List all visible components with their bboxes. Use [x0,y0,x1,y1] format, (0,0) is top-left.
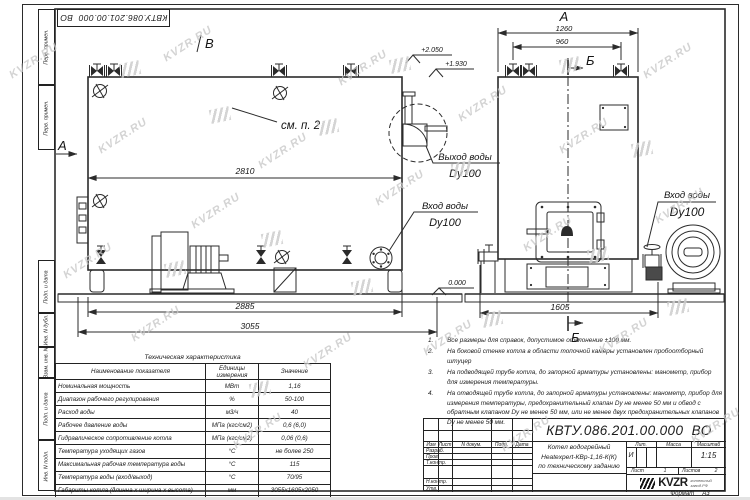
handhole-icon [92,194,108,208]
drawing-sheet: 2810 см. п. 2 В А +2.050 +1.930 0.000 Вы… [0,0,750,500]
margin-box-podp-data-1: Подп. и дата [38,260,55,313]
spec-row: Гидравлическое сопротивление котлаМПа (к… [56,432,331,445]
spec-table-title: Техническая характеристика [55,354,330,361]
margin-label: Инв. N подл. [44,450,50,481]
section-b-top-label: Б [586,53,595,68]
side-valve [478,245,498,293]
spec-cell: °С [206,471,259,484]
inlet-dn-label-side: Dy100 [429,217,462,229]
handhole-icon [274,250,290,264]
spec-cell: 0,6 (6,0) [259,419,331,432]
product-name-line: Котел водогрейный [533,444,625,451]
spec-row: Максимальная рабочая температура воды°С1… [56,458,331,471]
spec-cell: МПа (кгс/см2) [206,432,259,445]
note-item: 3.На подводящей трубе котла, до запорной… [428,368,722,388]
spec-row: Температура уходящих газов°Сне более 250 [56,445,331,458]
mass-label: Масса [656,442,691,448]
dim-1605-label: 1605 [551,302,570,312]
spec-cell: 1,16 [259,380,331,393]
kvzr-logo-icon [640,478,655,489]
spec-cell: Рабочее давление воды [56,419,206,432]
note-item: 2.На боковой стенке котла в области топо… [428,347,722,367]
safety-valve-icon [614,64,629,77]
inlet-valve [643,245,662,281]
margin-label: Взам. инв. N [44,347,50,378]
drain-valve-icon [256,246,266,264]
spec-cell: 115 [259,458,331,471]
spec-cell: 50-100 [259,393,331,406]
spec-row: Номинальная мощностьМВт1,16 [56,380,331,393]
outlet-label: Выход воды [438,152,491,163]
spec-cell: Диапазон рабочего регулирования [56,393,206,406]
dim-1260-label: 1260 [556,24,574,33]
spec-row: Температура воды (вход/выход)°С70/95 [56,471,331,484]
row-tkontr: Т.контр. [426,460,446,466]
spec-cell: % [206,393,259,406]
outlet-dn-label: Dy100 [449,168,482,180]
spec-row: Диапазон рабочего регулирования%50-100 [56,393,331,406]
door-latch [561,226,573,236]
handhole-icon [272,86,288,100]
notes-list: 1.Все размеры для справок, допустимое от… [428,336,722,429]
col-izm: Изм [424,442,438,448]
note-text: На боковой стенке котла в области топочн… [447,347,722,367]
drain-valve-icon [96,246,106,264]
spec-cell: Номинальная мощность [56,380,206,393]
safety-valve-icon [107,64,122,77]
safety-valve-icon [272,64,287,77]
dim-overall-label: 3055 [241,321,260,331]
spec-cell: °С [206,445,259,458]
margin-label: Подп. и дата [44,270,50,303]
row-utv: Утв. [426,486,437,492]
handhole-icon [92,84,108,98]
spec-cell: МПа (кгс/см2) [206,419,259,432]
safety-valve-icon [90,64,105,77]
blower-fan [666,225,720,293]
view-a-label: А [559,9,569,24]
top-stamp: КВТУ.086.201.00.000 ВО [57,9,170,27]
scale-value: 1:15 [691,451,726,460]
spec-cell: Температура воды (вход/выход) [56,471,206,484]
spec-cell: не более 250 [259,445,331,458]
detail-note-label: см. п. 2 [281,120,321,132]
dim-body-label: 2810 [235,166,255,176]
margin-label: Инв. N дубл. [44,315,50,346]
safety-valve-icon [522,64,537,77]
sheets-value: 2 [710,468,722,474]
safety-valve-icon [344,64,359,77]
elev-zero-label: 0.000 [448,280,466,287]
product-name-line: по техническому заданию [533,463,625,470]
spec-header-value: Значение [259,364,331,380]
spec-header-name: Наименование показателя [56,364,206,380]
safety-valve-icon [506,64,521,77]
spec-cell: Гидравлическое сопротивление котла [56,432,206,445]
note-number: 3. [428,368,440,388]
note-text: Все размеры для справок, допустимое откл… [447,336,631,346]
col-list: Лист [438,442,452,448]
product-name: Котел водогрейный Heatexpert-КВр-1,16-К(… [533,442,625,472]
dim-960-label: 960 [556,37,569,46]
kvzr-logo-caption: котельный завод.РФ [691,478,712,488]
dim-frame-label: 2885 [235,301,255,311]
view-b-label: В [205,36,214,51]
row-nkontr: Н.контр. [426,479,447,485]
inlet-label-side: Вход воды [422,201,468,212]
spec-cell: м3/ч [206,406,259,419]
spec-cell: 40 [259,406,331,419]
spec-cell: 0,06 (0,6) [259,432,331,445]
spec-header-row: Наименование показателя Единицы измерени… [56,364,331,380]
sheet-label: Лист [631,468,644,474]
section-a-label: А [57,138,67,153]
spec-cell: Температура уходящих газов [56,445,206,458]
title-block: КВТУ.086.201.00.000 ВО Изм Лист N докум.… [423,418,725,491]
drain-valve-icon [342,246,352,264]
spec-header-units: Единицы измерения [206,364,259,380]
sheets-label: Листов [682,468,700,474]
spec-cell: МВт [206,380,259,393]
margin-box-perv-primen-1: Перв. примен. [38,9,55,85]
kvzr-caption-line: завод.РФ [691,483,712,488]
inspection-port [600,105,628,130]
inlet-label-front: Вход воды [664,190,710,201]
margin-box-perv-primen-2: Перв. примен. [38,85,55,150]
inlet-dn-label-front: Dy100 [670,205,705,219]
spec-row: Габариты котла (длинна х ширина х высота… [56,484,331,497]
lit-value: И [626,452,636,459]
doc-number: КВТУ.086.201.00.000 ВО [532,419,726,441]
spec-cell: мм [206,484,259,497]
elev-2050-label: +2.050 [421,47,443,54]
spec-cell: Габариты котла (длинна х ширина х высота… [56,484,206,497]
spec-cell: Максимальная рабочая температура воды [56,458,206,471]
spec-cell: 70/95 [259,471,331,484]
col-data: Дата [512,442,532,448]
side-view [56,35,500,337]
lit-label: Лит. [626,442,656,448]
water-inlet-flange [370,247,392,269]
margin-label: Перв. примен. [44,100,50,135]
sheet-value: 1 [658,468,672,474]
spec-row: Рабочее давление водыМПа (кгс/см2)0,6 (6… [56,419,331,432]
col-ndokum: N докум. [452,442,491,448]
spec-cell: 3055х1605х2050 [259,484,331,497]
spec-row: Расход водым3/ч40 [56,406,331,419]
top-stamp-number: КВТУ.086.201.00.000 ВО [60,13,168,23]
margin-label: Подп. и дата [44,392,50,425]
note-number: 2. [428,347,440,367]
furnace-door [527,202,604,262]
spec-cell: °С [206,458,259,471]
note-item: 1.Все размеры для справок, допустимое от… [428,336,722,346]
margin-box-podp-data-2: Подп. и дата [38,378,55,440]
margin-box-inv-podl: Инв. N подл. [38,440,55,491]
spec-cell: Расход воды [56,406,206,419]
company-logo: KVZR котельный завод.РФ [627,475,725,491]
kvzr-logo-text: KVZR [658,477,687,489]
pump-unit [150,232,234,293]
margin-box-inv-dubl: Инв. N дубл. [38,313,55,347]
margin-label: Перв. примен. [44,29,50,64]
note-text: На подводящей трубе котла, до запорной а… [447,368,722,388]
scale-label: Масштаб [691,442,726,448]
col-podp: Подп. [491,442,512,448]
front-view [465,28,724,331]
product-name-line: Heatexpert-КВр-1,16-К(К) [533,454,625,461]
note-number: 1. [428,336,440,346]
elev-1930-label: +1.930 [445,61,467,68]
margin-box-vzam-inv: Взам. инв. N [38,347,55,378]
spec-table: Наименование показателя Единицы измерени… [55,363,331,498]
